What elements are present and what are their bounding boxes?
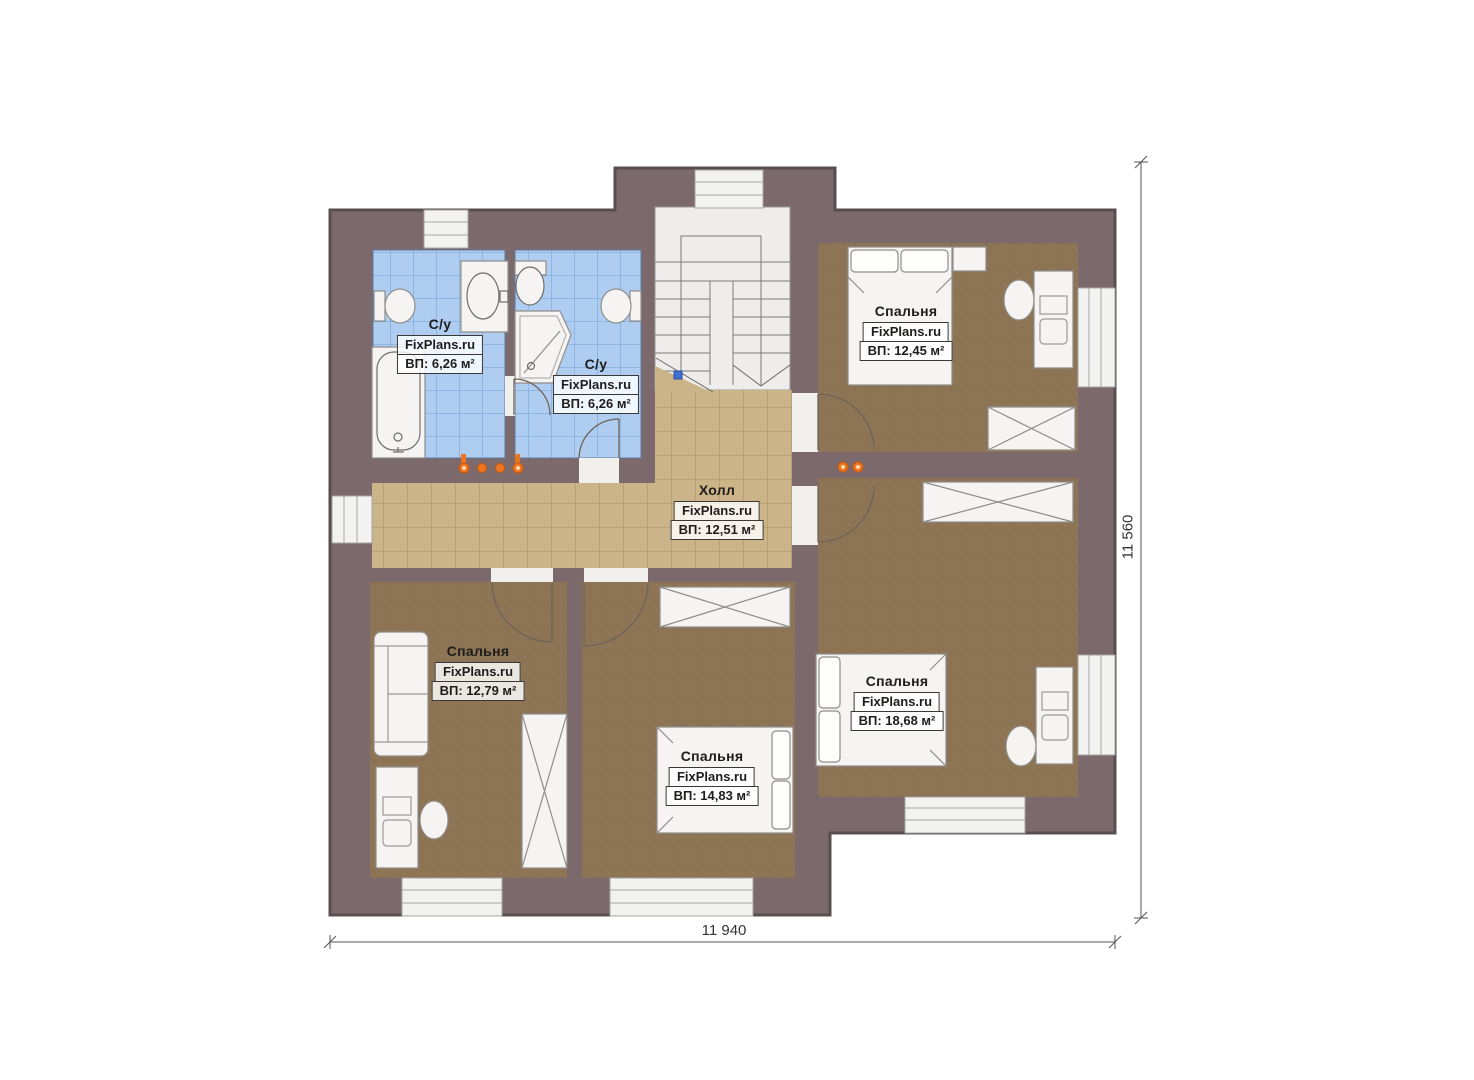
room-area: ВП: 18,68 м² xyxy=(851,711,944,731)
wall-light-icon xyxy=(462,466,466,470)
window-bottom-right-wing xyxy=(905,797,1025,833)
room-label-bathroom-right: С/у FixPlans.ru ВП: 6,26 м² xyxy=(553,356,639,414)
watermark: FixPlans.ru xyxy=(669,767,755,787)
room-area: ВП: 6,26 м² xyxy=(397,354,483,374)
desk xyxy=(376,767,418,868)
window-right-top xyxy=(1078,288,1115,387)
window-bottom-middle xyxy=(610,878,753,916)
room-label-bedroom-bottom-right: Спальня FixPlans.ru ВП: 18,68 м² xyxy=(851,673,944,731)
chair xyxy=(1006,726,1036,766)
window-stair-bump xyxy=(695,170,763,208)
room-area: ВП: 12,79 м² xyxy=(432,681,525,701)
dimension-width-label: 11 940 xyxy=(702,922,747,939)
room-area: ВП: 12,51 м² xyxy=(671,520,764,540)
room-label-bedroom-bottom-middle: Спальня FixPlans.ru ВП: 14,83 м² xyxy=(666,748,759,806)
door-gap-bedroom-top-right xyxy=(792,393,818,452)
toilet-right-icon xyxy=(601,289,641,323)
watermark: FixPlans.ru xyxy=(397,335,483,355)
watermark: FixPlans.ru xyxy=(674,501,760,521)
room-label-bedroom-top-right: Спальня FixPlans.ru ВП: 12,45 м² xyxy=(860,303,953,361)
wall-light-icon xyxy=(856,465,860,469)
room-label-bathroom-left: С/у FixPlans.ru ВП: 6,26 м² xyxy=(397,316,483,374)
desk xyxy=(1034,271,1073,368)
room-label-bedroom-bottom-left: Спальня FixPlans.ru ВП: 12,79 м² xyxy=(432,643,525,701)
sofa xyxy=(374,632,428,756)
wall-light-icon xyxy=(478,464,487,473)
watermark: FixPlans.ru xyxy=(553,375,639,395)
room-name: С/у xyxy=(553,356,639,372)
watermark: FixPlans.ru xyxy=(854,692,940,712)
floor-plan-page: С/у FixPlans.ru ВП: 6,26 м² С/у FixPlans… xyxy=(0,0,1474,1080)
wardrobe xyxy=(522,714,567,868)
floor-plan-drawing xyxy=(0,0,1474,1080)
room-name: Спальня xyxy=(860,303,953,319)
room-area: ВП: 14,83 м² xyxy=(666,786,759,806)
wall-light-icon xyxy=(841,465,845,469)
door-gap-bedroom-bottom-left xyxy=(491,568,553,582)
window-top-left xyxy=(424,210,468,248)
room-label-hall: Холл FixPlans.ru ВП: 12,51 м² xyxy=(671,482,764,540)
wall-light-icon xyxy=(461,454,466,463)
hall-floor-upper xyxy=(655,390,792,483)
wardrobe xyxy=(660,587,790,627)
room-name: Холл xyxy=(671,482,764,498)
window-right-bottom xyxy=(1078,655,1115,755)
wall-light-icon xyxy=(516,466,520,470)
watermark: FixPlans.ru xyxy=(435,662,521,682)
room-name: Спальня xyxy=(666,748,759,764)
room-area: ВП: 12,45 м² xyxy=(860,341,953,361)
window-left-hall xyxy=(332,496,372,543)
nightstand xyxy=(953,247,986,271)
door-gap-bathroom-right xyxy=(579,458,619,483)
window-bottom-left xyxy=(402,878,502,916)
dimension-height-label: 11 560 xyxy=(1120,515,1137,560)
room-area: ВП: 6,26 м² xyxy=(553,394,639,414)
door-gap-bedroom-bottom-middle xyxy=(584,568,648,582)
desk xyxy=(1036,667,1073,764)
room-name: Спальня xyxy=(851,673,944,689)
wall-light-icon xyxy=(515,454,520,463)
door-gap-bedroom-bottom-right xyxy=(792,486,818,545)
room-name: С/у xyxy=(397,316,483,332)
wall-light-icon xyxy=(496,464,505,473)
wardrobe xyxy=(988,407,1075,450)
chair xyxy=(1004,280,1034,320)
watermark: FixPlans.ru xyxy=(863,322,949,342)
wardrobe xyxy=(923,482,1073,522)
chair xyxy=(420,801,448,839)
room-name: Спальня xyxy=(432,643,525,659)
stair-handle xyxy=(674,371,682,379)
